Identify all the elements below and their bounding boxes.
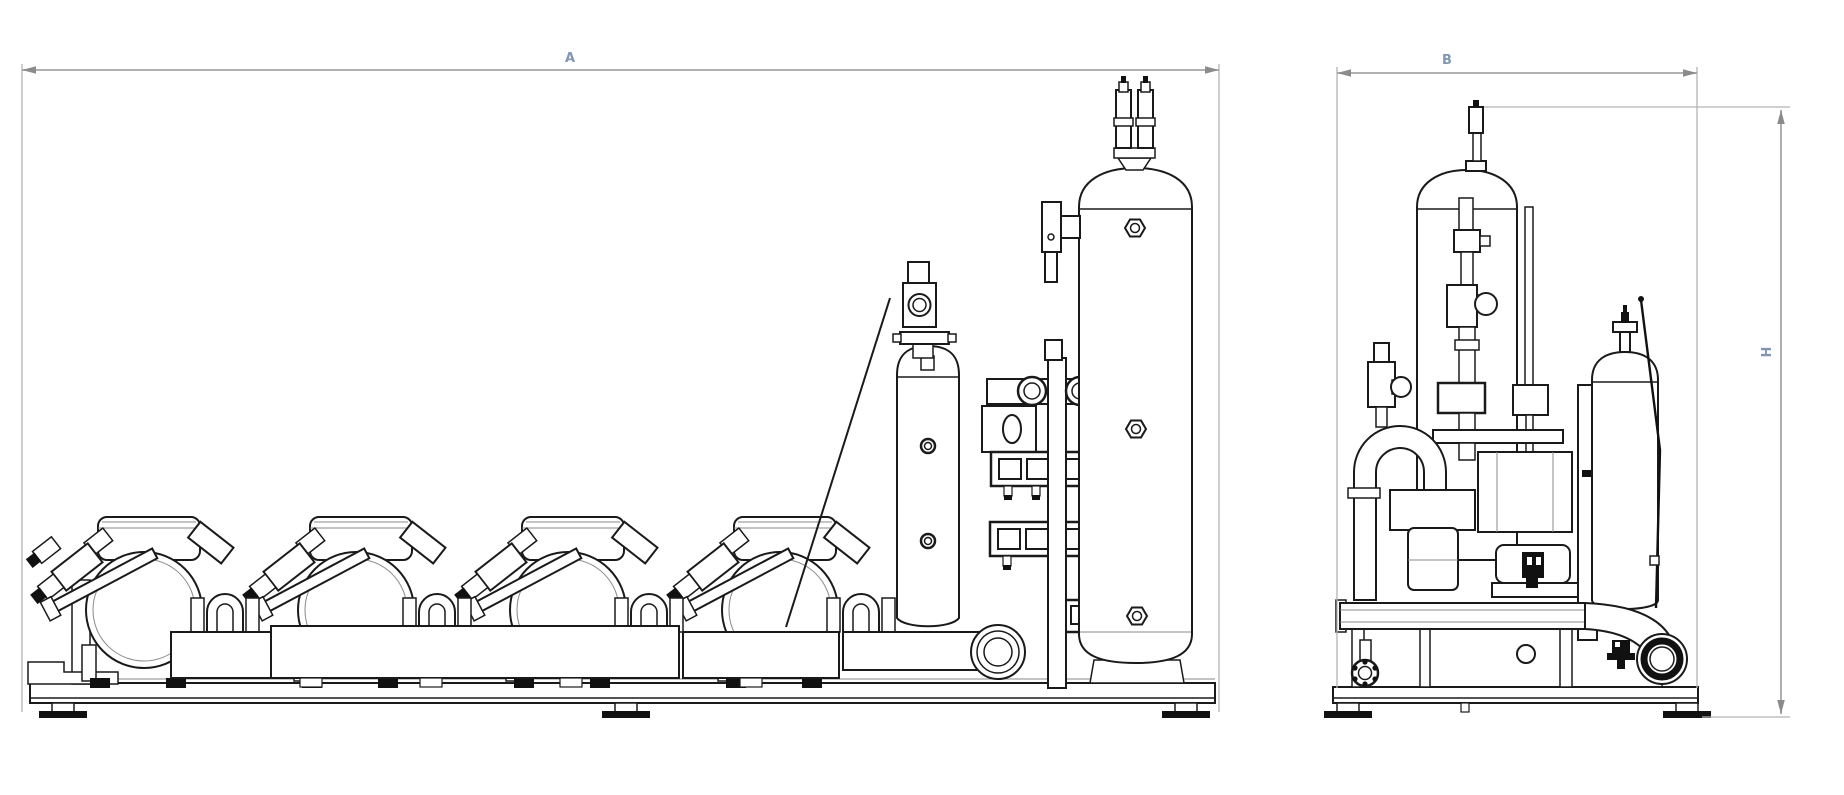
tank-hex-plug-top (1125, 220, 1145, 237)
rear-pipe (1513, 207, 1548, 455)
discharge-pipe-end (1637, 634, 1687, 687)
dim-a-arrow-right (1205, 66, 1219, 74)
front-foot-right (1162, 703, 1210, 718)
drawing-canvas: A (0, 0, 1844, 795)
dim-h-label: H (1760, 347, 1775, 358)
oil-reservoir-side-view (1592, 296, 1660, 609)
front-foot-left (39, 703, 87, 718)
suction-header (171, 625, 1025, 687)
tank-top-stem (1466, 100, 1486, 171)
drain-valve (1607, 640, 1635, 669)
tank-top-valves (1114, 76, 1155, 170)
dim-a-label: A (565, 51, 575, 66)
bottom-piping (1336, 600, 1687, 687)
inlet-valve (1368, 343, 1411, 427)
handwheel-left (1018, 377, 1046, 405)
side-base-frame (1324, 687, 1711, 718)
front-foot-center (602, 703, 650, 718)
front-view: A (22, 51, 1219, 718)
side-foot-right (1663, 703, 1711, 718)
tank-hex-plug-bottom (1127, 608, 1147, 625)
dim-b-label: B (1442, 53, 1452, 68)
tank-side-ball-valve (1042, 202, 1080, 282)
side-view: B H (1324, 53, 1790, 718)
dim-b-arrow-left (1337, 69, 1351, 77)
oil-level-line (786, 298, 890, 627)
dim-h-arrow-bottom (1777, 700, 1785, 714)
dim-b-arrow-right (1683, 69, 1697, 77)
dim-a-arrow-left (22, 66, 36, 74)
dim-h-arrow-top (1777, 110, 1785, 124)
vertical-pipe (1048, 358, 1066, 688)
tank-hex-plug-middle (1126, 421, 1146, 438)
side-foot-left (1324, 703, 1372, 718)
front-base-frame (30, 679, 1215, 718)
header-elbow-end (971, 625, 1025, 679)
oil-reservoir-side-valve (1613, 305, 1637, 352)
